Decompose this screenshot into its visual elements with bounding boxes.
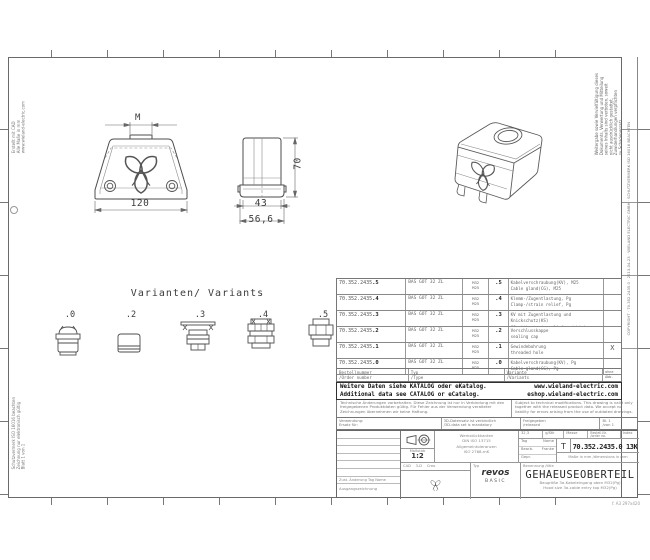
revision-table: Zust. Änderung Tag Name Ausgangszeichnun… (337, 431, 401, 499)
footer-variant: Variante /Variants (505, 369, 604, 381)
thread-cell: M32M25 (463, 343, 489, 358)
dim-label-width-120: 120 (120, 198, 160, 209)
format-note: f. A3 297x420 (556, 501, 640, 506)
table-footer: Bestellnummer /Order number Typ /Type Va… (336, 368, 622, 382)
table-row: 70.352.2435.1 BAS GOT 32 ZL M32M25 .1 Ge… (337, 343, 621, 359)
series-cell: Typ revos BASIC (471, 463, 521, 499)
isometric-view (428, 103, 558, 218)
thread-cell: M32M25 (463, 327, 489, 342)
left-margin-note-bottom-text: Schutzvermerk ISO 16016 beachten Zeichnu… (12, 397, 26, 469)
variant-item-0: .0 (50, 310, 90, 360)
catalog-banner: Weitere Daten siehe KATALOG oder eKatalo… (336, 382, 622, 400)
table-row: 70.352.2435.5 BAS GOT 32 ZL M32M25 .5 Ka… (337, 279, 621, 295)
protection-notice-text: Weitergabe sowie Vervielfältigung dieses… (595, 73, 624, 155)
description-cell: Klemm-/Zugentlastung, PgClamp-/strain re… (509, 295, 604, 310)
protection-notice-block: Weitergabe sowie Vervielfältigung dieses… (596, 59, 622, 169)
description-cell: Gewindebohrungthreaded hole (509, 343, 604, 358)
thread-cell: M32M25 (463, 279, 489, 294)
mass-value: 32,3 (519, 431, 543, 438)
names-bearb-value: Franke (542, 447, 554, 454)
info-3d-note: 3D-Datensatz ist verbindlich /3D-data se… (442, 418, 521, 429)
variant-item-3: .3 (180, 310, 220, 320)
units-note: Maße in mm /dimensions in mm (557, 453, 639, 463)
names-header-name: Name (543, 439, 554, 446)
description-cell: Verschlusskappesealing cap (509, 327, 604, 342)
part-subtitle-en: Hood size 3a-cable entry top M32(Pg) (521, 486, 639, 491)
brand-logo-cell: wieland Wieland Electric GmbH 96045 Bamb… (401, 471, 471, 499)
mark-cell (604, 311, 621, 326)
dim-label-flange-566: 56,6 (240, 214, 282, 225)
brand-wordmark: wieland (410, 498, 462, 499)
info-usage: Verwendung: Ersatz für: (337, 418, 442, 429)
index-label: Index (621, 431, 639, 438)
revision-row (337, 469, 400, 477)
mass-row: 32,3 g/Stk Masse Bestell-Nr. /order no. … (519, 431, 639, 439)
right-margin-strip: COPYRIGHT · 70.352.2435.0 · 2013-04-23 ·… (622, 57, 638, 400)
catalog-note-de: Weitere Daten siehe KATALOG oder eKatalo… (340, 384, 487, 392)
part-number-cell: 70.352.2435.2 (337, 327, 406, 342)
footer-mark-header: ohne Abb. (603, 369, 621, 381)
frame-ticks-top (8, 50, 622, 57)
variants-section: Varianten/ Variants .0 .2 (55, 288, 340, 374)
variants-heading: Varianten/ Variants (55, 288, 340, 299)
names-gepr-label: Gepr. (521, 455, 531, 462)
variant-index-cell: .1 (489, 343, 508, 358)
t-marker: T (557, 439, 571, 453)
eshop-url: eshop.wieland-electric.com (527, 392, 618, 400)
revision-row (337, 431, 400, 439)
mass-unit: g/Stk (543, 431, 564, 438)
isometric-view-drawing (428, 103, 558, 218)
description-cell: KV mit Zugentlastung und Knickschutz(KS)… (509, 311, 604, 326)
part-number: 70.352.2435.0 13K (571, 439, 639, 453)
title-block: Zust. Änderung Tag Name Ausgangszeichnun… (336, 430, 638, 498)
variant-index-cell: .2 (489, 327, 508, 342)
thread-cell: M32M25 (463, 295, 489, 310)
type-cell: BAS GOT 32 ZL (406, 327, 463, 342)
cad-strip: CAD 3-D Creo (401, 463, 471, 471)
series-sub: BASIC (471, 479, 520, 484)
table-row: 70.352.2435.2 BAS GOT 32 ZL M32M25 .2 Ve… (337, 327, 621, 343)
left-margin-note-bottom: Schutzvermerk ISO 16016 beachten Zeichnu… (12, 383, 32, 483)
type-cell: BAS GOT 32 ZL (406, 279, 463, 294)
type-cell: BAS GOT 32 ZL (406, 343, 463, 358)
info-row: Verwendung: Ersatz für: 3D-Datensatz ist… (336, 418, 638, 430)
names-bearb-label: Bearb. (521, 447, 533, 454)
catalog-note-en: Additional data see CATALOG or eCatalog. (340, 392, 480, 400)
punch-hole-mark (10, 206, 18, 214)
projection-symbol-cell (401, 431, 435, 449)
names-grid: TagName Bearb.Franke Gepr. Norm (519, 439, 557, 463)
info-sheet-number: Bl. 1 /von 1 (600, 418, 637, 429)
variant-index-cell: .5 (489, 279, 508, 294)
right-margin-strip-text: COPYRIGHT · 70.352.2435.0 · 2013-04-23 ·… (627, 122, 632, 335)
variant-item-4: .4 (243, 310, 283, 320)
dim-label-height-70: 70 (293, 154, 304, 174)
projection-symbol-icon (404, 434, 432, 446)
order-number-label: Bestell-Nr. /order no. (588, 431, 620, 438)
table-row: 70.352.2435.4 BAS GOT 32 ZL M32M25 .4 Kl… (337, 295, 621, 311)
footer-order-number: Bestellnummer /Order number (337, 369, 409, 381)
scale-value: 1:2 (401, 453, 434, 460)
frame-ticks-right (638, 57, 650, 498)
table-row: 70.352.2435.3 BAS GOT 32 ZL M32M25 .3 KV… (337, 311, 621, 327)
revision-row (337, 461, 400, 469)
wieland-flower-icon (122, 153, 160, 193)
variant-3-icon (180, 314, 216, 360)
part-number-cell: 70.352.2435.3 (337, 311, 406, 326)
frame-ticks-bottom (8, 498, 622, 505)
mass-label: Masse (564, 431, 588, 438)
variant-label: .2 (111, 310, 151, 320)
thread-cell: M32M25 (463, 311, 489, 326)
dim-label-width-43: 43 (243, 198, 279, 209)
revision-row (337, 446, 400, 454)
left-margin-note-top: Erstellt mit CAD Alle Maße in mm www.wie… (12, 80, 32, 175)
tolerance-notes: Werkstückkanten DIN ISO 13715 Allgemeint… (435, 431, 519, 463)
left-margin-note-top-text: Erstellt mit CAD Alle Maße in mm www.wie… (12, 101, 26, 153)
variant-index-cell: .4 (489, 295, 508, 310)
disclaimer-de: Technische Änderungen vorbehalten. Diese… (337, 400, 512, 417)
origin-drawing-note: Ausgangszeichnung (337, 484, 400, 493)
series-name: revos (471, 469, 520, 479)
part-title-cell: Benennung /title GEHAEUSEOBERTEIL Baugrö… (521, 463, 639, 499)
website-url: www.wieland-electric.com (534, 384, 618, 392)
variant-4-icon (243, 314, 279, 360)
wieland-flower-icon (429, 478, 442, 491)
part-number-cell: 70.352.2435.1 (337, 343, 406, 358)
wieland-flower-icon (469, 159, 497, 193)
mark-cell (604, 295, 621, 310)
dim-label-thread: M (128, 113, 148, 123)
type-cell: BAS GOT 32 ZL (406, 295, 463, 310)
part-number-cell: 70.352.2435.5 (337, 279, 406, 294)
revision-row (337, 454, 400, 462)
info-release: Freigegeben /released (521, 418, 600, 429)
variant-index-cell: .3 (489, 311, 508, 326)
names-header-date: Tag (521, 439, 527, 446)
frame-ticks-left (0, 57, 8, 498)
revision-header: Zust. Änderung Tag Name (337, 477, 400, 484)
footer-type: Typ /Type (409, 369, 505, 381)
disclaimer-en: Subject to technical modifications. This… (512, 400, 637, 417)
variant-label: .0 (50, 310, 90, 320)
variant-5-icon (303, 314, 339, 360)
mark-cell: X (604, 343, 621, 358)
disclaimer-block: Technische Änderungen vorbehalten. Diese… (336, 400, 638, 418)
variant-item-2: .2 (111, 310, 151, 360)
drawing-sheet: Erstellt mit CAD Alle Maße in mm www.wie… (0, 0, 650, 560)
revision-row (337, 439, 400, 447)
type-cell: BAS GOT 32 ZL (406, 311, 463, 326)
scale-cell: Maßstab 1:2 (401, 449, 435, 463)
description-cell: Kabelverschraubung(KV), M25Cable gland(C… (509, 279, 604, 294)
variant-2-icon (111, 320, 147, 360)
mark-cell (604, 327, 621, 342)
variant-0-icon (50, 320, 86, 360)
part-number-cell: 70.352.2435.4 (337, 295, 406, 310)
variants-table: 70.352.2435.5 BAS GOT 32 ZL M32M25 .5 Ka… (336, 278, 622, 368)
mark-cell (604, 279, 621, 294)
